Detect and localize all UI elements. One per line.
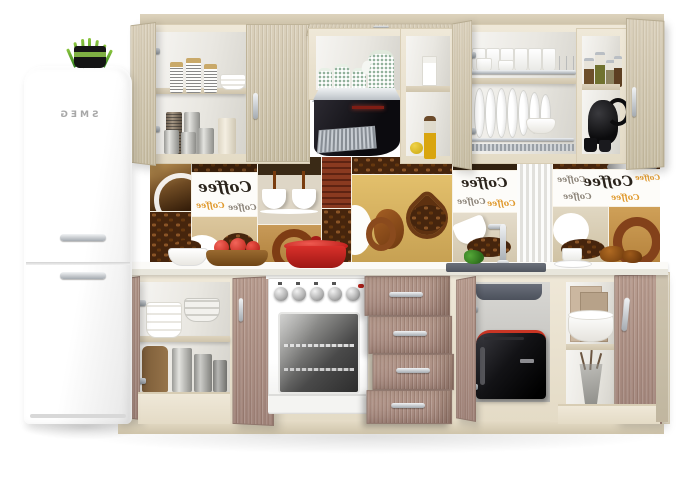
wooden-bowl (206, 250, 268, 266)
small-tin (198, 128, 214, 154)
fridge-base-vent (30, 414, 126, 418)
white-cup (514, 48, 528, 72)
black-cup (584, 138, 597, 152)
tile-gold-heart-bowl (352, 175, 453, 264)
bottom-drawer-front (558, 404, 660, 424)
upper-left-door-open (130, 22, 156, 166)
small-tin (164, 130, 179, 154)
knob-mark (314, 282, 318, 285)
oven-door-glass (278, 312, 360, 394)
plate (507, 88, 518, 138)
stove-knob (274, 287, 288, 301)
door-handle (239, 298, 243, 322)
glass-reflection (278, 312, 320, 394)
coffee-script: Coffee (196, 201, 225, 209)
stove-knob (292, 287, 306, 301)
saucer (260, 209, 318, 214)
black-cup (599, 140, 611, 152)
toaster-side-slot (480, 347, 485, 385)
cup-rim-arc (154, 173, 192, 212)
stove-knob (346, 287, 360, 301)
drawer-handle (389, 292, 423, 297)
stove (266, 268, 368, 418)
coffee-script: Coffee (461, 177, 507, 190)
fridge-brand-logo: SMEG (24, 110, 132, 120)
tile-coffee-text-c: Coffee Coffee Coffee Coffee Coffee (553, 170, 660, 207)
metal-canister (172, 348, 192, 392)
hood-control-glow (352, 106, 384, 109)
fridge-upper-handle (60, 234, 106, 241)
kitchen-render: Coffee Coffee Coffee (0, 0, 700, 477)
stove-knob (328, 287, 342, 301)
gray-bowl-stack (184, 298, 220, 322)
sink-underside (476, 284, 542, 300)
coffee-script: Coffee (635, 174, 660, 181)
fridge-lower-handle (60, 272, 106, 279)
spice-jar (614, 56, 622, 87)
spice-jar (584, 58, 594, 87)
fridge: SMEG (24, 66, 132, 424)
printed-jar (170, 62, 183, 93)
coffee-script: Coffee (557, 175, 586, 183)
knob-mark (296, 282, 300, 285)
jug-handle (366, 217, 396, 251)
upper-cabinet-right (440, 12, 680, 172)
white-bowl-stack (146, 302, 182, 338)
toaster-logo (520, 359, 534, 363)
white-cup (542, 48, 556, 72)
open-cubby-bottom (566, 350, 614, 406)
teapot (368, 50, 394, 94)
knob-mark (332, 282, 336, 285)
printed-jar (204, 64, 217, 93)
white-coffee-cup (262, 189, 286, 209)
coffee-script: Coffee (457, 197, 486, 205)
curved-door-handle (621, 297, 630, 331)
cream-canister (218, 118, 236, 154)
coffee-cup-and-saucer (554, 248, 590, 268)
printed-jar (186, 58, 201, 93)
metal-canister (194, 354, 212, 392)
dish-rack-base (470, 144, 574, 151)
coffee-script: Coffee (611, 193, 640, 201)
fridge-door-split (26, 262, 130, 265)
bowl-of-beans (168, 240, 206, 266)
pastry (600, 246, 624, 262)
open-cubby-top (566, 282, 614, 344)
plate (496, 88, 507, 138)
white-cup (528, 48, 542, 72)
faucet-column (500, 224, 506, 264)
toaster-slot (484, 337, 524, 340)
knob-mark (278, 282, 282, 285)
door-handle (632, 87, 636, 117)
right-cabinet-right-door-open (626, 18, 664, 170)
pot-body (286, 246, 346, 268)
kettle-cubby (582, 90, 620, 154)
dish-rack-rail (470, 138, 574, 141)
sink-basin-rim (446, 263, 546, 272)
tile-coffee-text-b: Coffee Coffee Coffee (453, 171, 517, 213)
tile-cinnamon (322, 157, 352, 209)
metal-canister (213, 360, 227, 392)
coffee-script: Coffee (228, 203, 257, 211)
drawer-handle (391, 403, 425, 408)
drawer-handle (396, 368, 430, 373)
toaster (476, 330, 546, 399)
wire-shelf-rail (468, 70, 576, 74)
cutting-board (142, 346, 168, 392)
right-end-panel (656, 272, 668, 422)
saucer (554, 260, 592, 268)
white-bowl (168, 248, 208, 266)
parsley-garnish (464, 250, 484, 264)
wooden-bowl-of-tomatoes (206, 236, 268, 268)
glass-vase (576, 364, 606, 404)
sink-cabinet (440, 272, 560, 422)
coffee-script: Coffee (198, 180, 251, 195)
pastry (622, 250, 642, 263)
range-hood-glass (314, 100, 400, 156)
milk-glass (422, 56, 437, 86)
coffee-script: Coffee (487, 199, 516, 207)
coffee-script: Coffee (583, 175, 633, 189)
tureen-rim (568, 310, 614, 320)
white-bowl-stack (220, 74, 246, 90)
upper-left-door-closed (246, 24, 310, 162)
red-pot (284, 236, 348, 270)
faucet (488, 222, 518, 268)
base-right-door-open (614, 274, 662, 424)
coffee-stream (273, 171, 276, 191)
pleated-panel (517, 157, 553, 264)
tile-coffee-text-a: Coffee Coffee Coffee (192, 173, 258, 217)
oil-bottle (424, 116, 436, 159)
coffee-script: Coffee (563, 192, 592, 200)
stove-drawer (268, 394, 366, 412)
base-cabinet-right (558, 272, 670, 424)
coffee-stream (302, 171, 305, 191)
drawer-handle (393, 331, 427, 336)
white-coffee-cup (292, 189, 316, 209)
plant-pot (74, 46, 106, 68)
upper-cabinet-left (120, 12, 312, 170)
lemon (410, 142, 423, 154)
drawer-open-1 (365, 276, 451, 316)
hood-filter (317, 126, 377, 154)
spice-jar (595, 52, 605, 87)
heart-beans (410, 205, 446, 231)
right-cabinet-left-door-open (452, 20, 472, 170)
plate (485, 88, 496, 138)
upper-cabinet-middle (306, 12, 456, 164)
cabinet-shelf (468, 78, 576, 84)
sink-door-open (456, 276, 476, 422)
small-tin (181, 132, 196, 154)
door-handle (253, 93, 258, 119)
base-apron (138, 392, 230, 424)
stove-knob (310, 287, 324, 301)
